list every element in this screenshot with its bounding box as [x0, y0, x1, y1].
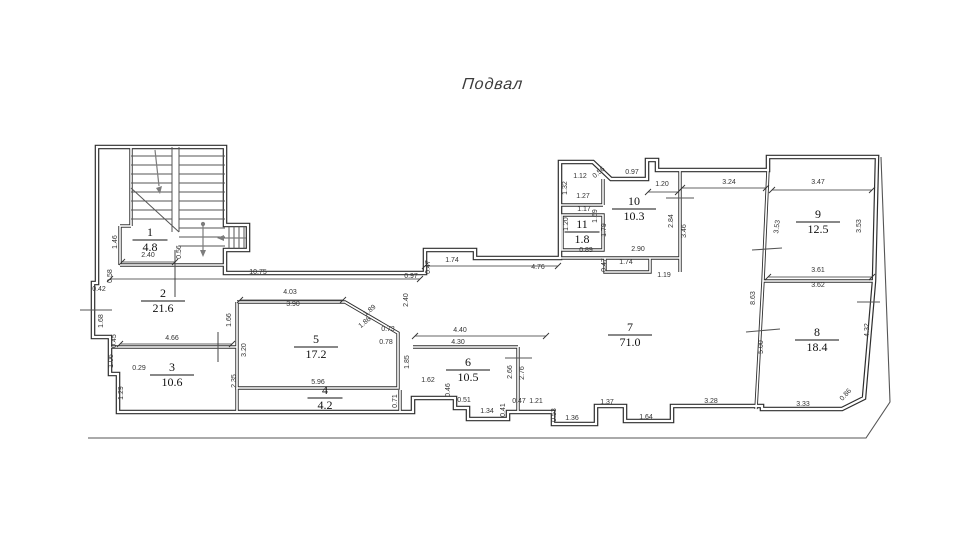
- room-area: 1.8: [575, 232, 590, 246]
- dimension-label: 4.76: [531, 264, 545, 271]
- dimension-label: 0.89: [579, 247, 593, 254]
- dimension-label: 4.66: [165, 335, 179, 342]
- construction-line: [746, 329, 780, 332]
- dimension-label: 0.86: [839, 388, 853, 403]
- room-label: 912.5: [796, 207, 840, 236]
- stair-arrow-down-icon: [156, 186, 162, 194]
- dimension-label: 0.97: [404, 273, 418, 280]
- dimension-label: 0.45: [111, 334, 118, 348]
- thin-lines-layer: [80, 157, 890, 438]
- dimension-label: 1.37: [600, 399, 614, 406]
- dimension-label: 1.85: [404, 355, 411, 369]
- outer-wall: [93, 147, 877, 424]
- dimension-label: 0.73: [381, 326, 395, 333]
- dimension-label: 1.74: [619, 259, 633, 266]
- floorplan-page: Подвал 1.462.400.5610.750.580.421.680.45…: [0, 0, 973, 540]
- stair-arrow-down-icon: [200, 250, 206, 257]
- room-number: 10: [628, 194, 640, 208]
- dimension-label: 2.40: [403, 293, 410, 307]
- walls-outline-layer: [93, 147, 877, 424]
- stair-arrow-left-icon: [217, 235, 224, 241]
- dimension-label: 4.30: [451, 339, 465, 346]
- room-label: 14.8: [133, 225, 168, 254]
- dimension-label: 1.74: [445, 257, 459, 264]
- dimension-label: 1.27: [576, 193, 590, 200]
- dimension-label: 1.69: [592, 209, 599, 223]
- inner-wall-hollow: [756, 170, 768, 409]
- dimension-label: 0.47: [512, 398, 526, 405]
- room-area: 17.2: [306, 347, 327, 361]
- dimension-label: 3.20: [241, 343, 248, 357]
- room-number: 8: [814, 325, 820, 339]
- room-label: 221.6: [141, 286, 185, 315]
- dimension-label: 1.21: [529, 398, 543, 405]
- room-number: 7: [627, 320, 633, 334]
- dimension-label: 10.75: [249, 269, 267, 276]
- dimension-label: 0.41: [500, 403, 507, 417]
- dimension-label: 1.17: [577, 206, 591, 213]
- construction-line: [752, 248, 782, 250]
- room-area: 4.2: [318, 398, 333, 412]
- dimension-label: 1.29: [118, 386, 125, 400]
- dimension-label: 3.53: [773, 220, 782, 234]
- dimension-label: 1.36: [565, 415, 579, 422]
- room-number: 11: [576, 217, 588, 231]
- dimension-label: 0.29: [132, 365, 146, 372]
- dimension-label: 0.97: [625, 169, 639, 176]
- labels-layer: 1.462.400.5610.750.580.421.680.451.060.2…: [92, 166, 871, 422]
- room-area: 10.3: [624, 209, 645, 223]
- plan-title: Подвал: [461, 76, 524, 94]
- room-number: 3: [169, 360, 175, 374]
- dimension-label: 1.06: [108, 354, 115, 368]
- room-area: 10.5: [458, 370, 479, 384]
- dimension-label: 0.42: [92, 286, 106, 293]
- dimension-label: 2.84: [668, 214, 675, 228]
- dimension-label: 0.51: [457, 397, 471, 404]
- room-number: 9: [815, 207, 821, 221]
- dimension-label: 4.32: [864, 323, 871, 337]
- room-label: 1010.3: [612, 194, 656, 223]
- dimension-label: 4.03: [283, 289, 297, 296]
- dimension-label: 1.46: [112, 235, 119, 249]
- dimension-label: 1.32: [562, 181, 569, 195]
- dimension-label: 1.64: [639, 414, 653, 421]
- dimension-label: 3.62: [811, 282, 825, 289]
- room-label: 818.4: [795, 325, 839, 354]
- room-area: 12.5: [808, 222, 829, 236]
- dimension-label: 1.19: [657, 272, 671, 279]
- dimension-label: 8.63: [750, 291, 757, 305]
- room-area: 10.6: [162, 375, 183, 389]
- walls-hollow-layer: [93, 147, 877, 424]
- room-number: 2: [160, 286, 166, 300]
- dimension-label: 1.66: [226, 313, 233, 327]
- dimension-label: 1.62: [421, 377, 435, 384]
- dimension-label: 3.61: [811, 267, 825, 274]
- dimension-label: 3.47: [811, 179, 825, 186]
- room-label: 517.2: [294, 332, 338, 361]
- room-label: 771.0: [608, 320, 652, 349]
- dimension-label: 0.47: [425, 260, 432, 274]
- stair-walk-line: [155, 150, 159, 186]
- dimension-label: 5.00: [758, 340, 765, 354]
- room-number: 5: [313, 332, 319, 346]
- dimension-label: 1.79: [601, 223, 608, 237]
- room-label: 310.6: [150, 360, 194, 389]
- dimension-label: 1.34: [480, 408, 494, 415]
- room-number: 1: [147, 225, 153, 239]
- room-label: 610.5: [446, 355, 490, 384]
- walk-line-start-dot: [201, 222, 205, 226]
- dimension-label: 0.56: [176, 245, 183, 259]
- dimension-label: 3.46: [681, 224, 688, 238]
- room-area: 71.0: [620, 335, 641, 349]
- dimension-label: 0.78: [379, 339, 393, 346]
- dimension-label: 0.56: [592, 166, 607, 180]
- dimension-label: 2.90: [631, 246, 645, 253]
- room-number: 4: [322, 383, 328, 397]
- room-number: 6: [465, 355, 471, 369]
- dimension-label: 0.47: [601, 258, 608, 272]
- dimension-label: 3.33: [796, 401, 810, 408]
- dimension-label: 0.46: [445, 383, 452, 397]
- dimension-label: 0.58: [107, 269, 114, 283]
- dimension-label: 1.20: [655, 181, 669, 188]
- dimension-label: 1.12: [573, 173, 587, 180]
- dimension-label: 2.66: [507, 365, 514, 379]
- dimension-label: 2.35: [231, 374, 238, 388]
- room-area: 21.6: [153, 301, 174, 315]
- dimension-label: 4.40: [453, 327, 467, 334]
- dimension-label: 0.53: [551, 408, 558, 422]
- room-area: 18.4: [807, 340, 828, 354]
- dimension-label: 0.71: [392, 394, 399, 408]
- dimension-label: 1.68: [98, 314, 105, 328]
- dimension-label: 1.20: [563, 217, 570, 231]
- dimension-label: 3.28: [704, 398, 718, 405]
- construction-line: [88, 157, 890, 438]
- dimension-label: 3.24: [722, 179, 736, 186]
- outer-wall-hollow: [93, 147, 877, 424]
- dimension-label: 3.90: [286, 301, 300, 308]
- room-area: 4.8: [143, 240, 158, 254]
- dimension-label: 2.76: [519, 366, 526, 380]
- dimension-label: 3.53: [856, 219, 863, 233]
